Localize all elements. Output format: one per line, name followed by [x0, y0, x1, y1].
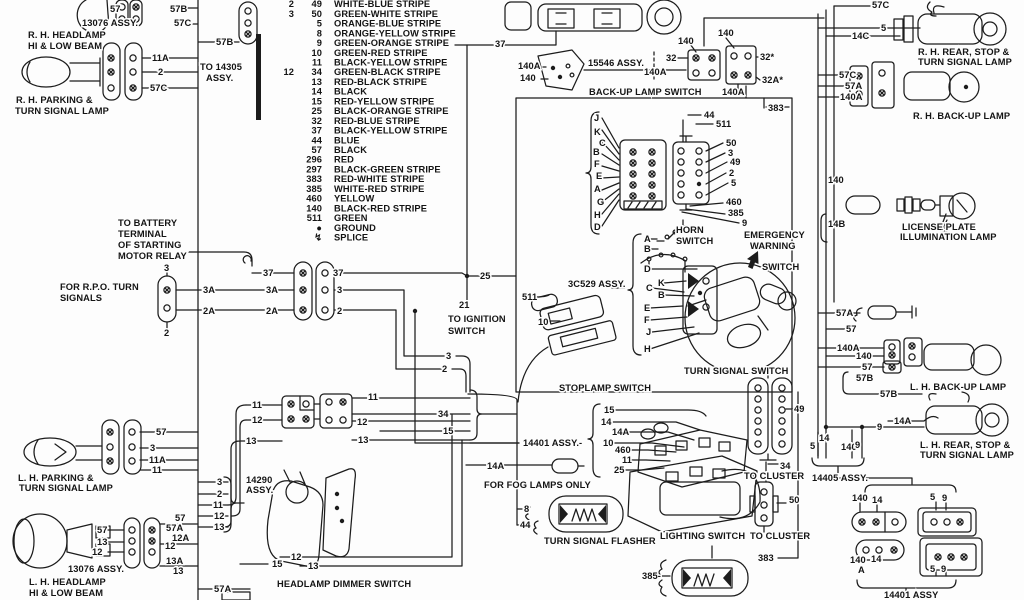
component-label: TURN SIGNAL LAMP — [19, 483, 113, 493]
wire-code-label: 11 — [252, 400, 262, 410]
wire-code-label: B — [644, 244, 651, 254]
legend-color-name: BLACK — [334, 87, 367, 97]
legend-circuit-number: 37 — [311, 126, 322, 136]
legend-circuit-number: 140 — [306, 203, 322, 213]
wire-code-label: 5 — [881, 23, 886, 33]
component-label: L. H. PARKING & — [18, 473, 94, 483]
wire-code-label: 57C — [174, 18, 192, 28]
wire-code-label: 44 — [704, 110, 715, 120]
wire-code-label: 34 — [438, 409, 449, 419]
wire-code-label: 140 — [718, 28, 734, 38]
component-label: LIGHTING SWITCH — [660, 531, 745, 541]
wire-code-label: B — [593, 147, 600, 157]
assembly-label: 14401 ASSY — [884, 590, 939, 600]
wire-code-label: 57 — [97, 525, 108, 535]
legend-circuit-number: ● — [316, 223, 322, 233]
component-label: WARNING — [750, 241, 796, 251]
wire-code-label: 50 — [726, 138, 737, 148]
legend-color-name: RED-WHITE STRIPE — [334, 174, 424, 184]
wire-code-label: 12 — [214, 511, 225, 521]
legend-circuit-number: 14 — [311, 87, 322, 97]
wire-code-label: 37 — [333, 268, 344, 278]
component-label: BACK-UP LAMP SWITCH — [589, 87, 702, 97]
assembly-label: 14401 ASSY.- — [523, 438, 582, 448]
legend-circuit-number: 385 — [306, 184, 322, 194]
wire-code-label: 37 — [263, 268, 274, 278]
wire-code-label: 2 — [729, 168, 734, 178]
legend-circuit-number: 15 — [311, 96, 322, 106]
legend-color-name: GREEN-ORANGE STRIPE — [334, 38, 449, 48]
legend-color-name: GREEN-RED STRIPE — [334, 48, 428, 58]
legend-circuit-number: 32 — [311, 116, 322, 126]
wire-code-label: 511 — [522, 292, 537, 302]
wire-code-label: 14B — [828, 219, 846, 229]
assembly-label: 3C529 ASSY. — [568, 279, 626, 289]
wire-code-label: 385 — [728, 208, 744, 218]
wire-code-label: 140A — [722, 87, 745, 97]
note-label: FOR FOG LAMPS ONLY — [484, 480, 592, 490]
wire-code-label: 13 — [97, 537, 108, 547]
wire-code-label: K — [658, 278, 665, 288]
legend-circuit-number: 50 — [311, 9, 322, 19]
legend-circuit-number: 25 — [311, 106, 322, 116]
wire-code-label: 13 — [358, 435, 369, 445]
wire-code-label: 57C — [872, 0, 890, 10]
assembly-label: 13076 ASSY. — [68, 564, 124, 574]
wire-code-label: C — [646, 283, 653, 293]
labels-layer: 5713076 ASSY.57B57CR. H. HEADLAMPHI & LO… — [15, 0, 1014, 600]
wire-code-label: 9 — [877, 422, 882, 432]
wire-code-label: 9 — [855, 440, 860, 450]
wire-code-label: 9 — [742, 218, 747, 228]
wire-code-label: 57B — [216, 37, 234, 47]
wire-code-label: 3A — [203, 285, 215, 295]
component-label: LICENSE PLATE — [902, 222, 976, 232]
component-label: ILLUMINATION LAMP — [900, 232, 997, 242]
legend-color-name: RED-BLUE STRIPE — [334, 116, 420, 126]
note-label: TO CLUSTER — [750, 531, 810, 541]
wire-code-label: 14A — [487, 461, 505, 471]
wire-code-label: 14 — [601, 417, 612, 427]
legend-circuit-number: 44 — [311, 135, 322, 145]
component-label: SWITCH — [676, 236, 713, 246]
wire-code-label: H — [644, 344, 651, 354]
legend-color-name: RED — [334, 155, 354, 165]
wire-code-label: 57C — [839, 70, 857, 80]
wire-code-label: 57 — [175, 513, 186, 523]
legend-color-name: BLACK — [334, 145, 367, 155]
legend-color-name: BLACK-ORANGE STRIPE — [334, 106, 449, 116]
wire-code-label: 14C — [852, 31, 870, 41]
wire-code-label: 5 — [930, 564, 935, 574]
wire-code-label: 460 — [615, 445, 631, 455]
component-label: R. H. PARKING & — [16, 95, 93, 105]
wire-code-label: 57 — [846, 324, 857, 334]
right-rear-harness — [812, 2, 938, 484]
wire-code-label: 5 — [930, 492, 935, 502]
wire-code-label: 9 — [942, 493, 947, 503]
component-label: L. H. BACK-UP LAMP — [910, 382, 1006, 392]
wire-code-label: 57A — [214, 584, 232, 594]
wire-code-label: E — [596, 171, 602, 181]
legend-color-name: BLACK-RED STRIPE — [334, 203, 427, 213]
wire-code-label: 9 — [941, 564, 946, 574]
wire-code-label: 14 — [871, 554, 882, 564]
wire-code-label: 32* — [760, 52, 775, 62]
wire-code-label: 57 — [110, 4, 121, 14]
wire-code-label: 34 — [780, 461, 791, 471]
wire-code-label: J — [646, 327, 651, 337]
note-label: FOR R.P.O. TURN — [60, 282, 139, 292]
component-label: TURN SIGNAL SWITCH — [684, 366, 789, 376]
component-label: TURN SIGNAL LAMP — [920, 450, 1014, 460]
wire-code-label: 12 — [165, 541, 176, 551]
note-label: MOTOR RELAY — [118, 251, 187, 261]
note-label: TO BATTERY — [118, 218, 178, 228]
legend-color-name: BLACK-YELLOW STRIPE — [334, 58, 447, 68]
wire-code-label: 12 — [252, 415, 263, 425]
legend-circuit-number: 297 — [306, 164, 322, 174]
wire-code-label: 2 — [164, 328, 169, 338]
wire-code-label: 2 — [217, 489, 222, 499]
wire-code-label: 12 — [357, 417, 368, 427]
wire-code-label: 57A — [836, 308, 854, 318]
wire-code-label: 13A — [166, 556, 184, 566]
wire-code-label: 2A — [266, 306, 278, 316]
legend-color-name: GROUND — [334, 223, 376, 233]
wire-code-label: 50 — [789, 495, 800, 505]
wire-code-label: 15 — [443, 426, 454, 436]
wire-code-label: 12 — [92, 547, 103, 557]
wire-code-label: 2 — [442, 364, 447, 374]
legend-color-name: GREEN-BLACK STRIPE — [334, 67, 441, 77]
wire-code-label: 57B — [856, 373, 874, 383]
component-label: HI & LOW BEAM — [29, 588, 103, 598]
wire-code-label: C — [599, 138, 606, 148]
legend-color-name: YELLOW — [334, 194, 374, 204]
legend-circuit-number: 9 — [317, 38, 322, 48]
wire-code-label: 37 — [495, 39, 506, 49]
wire-code-label: 14A — [894, 416, 912, 426]
legend-circuit-number: 49 — [311, 0, 322, 9]
wire-code-label: 14 — [872, 495, 883, 505]
assembly-label: 14405 ASSY. — [812, 473, 868, 483]
wire-code-label: 2 — [158, 67, 163, 77]
component-label: STOPLAMP SWITCH — [559, 383, 651, 393]
component-label: R. H. BACK-UP LAMP — [913, 111, 1010, 121]
note-label: SIGNALS — [60, 293, 102, 303]
wire-code-label: 140 — [856, 351, 872, 361]
note-label: OF STARTING — [118, 240, 181, 250]
component-label: EMERGENCY — [744, 230, 806, 240]
wire-code-label: 511 — [716, 119, 731, 129]
wire-code-label: F — [594, 159, 600, 169]
legend-color-name: ORANGE-BLUE STRIPE — [334, 19, 441, 29]
legend-circuit-number: 511 — [307, 213, 322, 223]
wire-code-label: 57A — [166, 523, 184, 533]
legend-circuit-number: 383 — [306, 174, 322, 184]
wire-code-label: F — [644, 315, 650, 325]
wire-code-label: G — [597, 197, 604, 207]
legend-circuit-number: 460 — [306, 194, 322, 204]
wire-code-label: 32A* — [762, 75, 783, 85]
assembly-label: 15546 ASSY. — [588, 58, 644, 68]
wire-code-label: 10 — [538, 317, 549, 327]
wire-code-label: 57 — [862, 362, 873, 372]
legend-circuit-number: 5 — [317, 19, 322, 29]
legend-circuit-number: 3 — [289, 9, 294, 19]
note-label: SWITCH — [448, 326, 485, 336]
wire-code-label: 10 — [603, 438, 614, 448]
wire-code-label: 32 — [666, 53, 677, 63]
legend-color-name: BLACK-GREEN STRIPE — [334, 164, 441, 174]
wire-code-label: 57C — [150, 83, 168, 93]
component-label: L. H. HEADLAMP — [29, 577, 106, 587]
wire-code-label: 140A — [840, 92, 863, 102]
wire-code-label: 14A — [612, 427, 630, 437]
wire-code-label: 49 — [794, 404, 805, 414]
legend-circuit-number: 11 — [312, 58, 322, 68]
component-label: R. H. HEADLAMP — [28, 30, 106, 40]
wire-code-label: 3 — [164, 263, 169, 273]
legend-circuit-number: ↯ — [314, 232, 322, 242]
wire-code-label: 11 — [368, 392, 378, 402]
wire-code-label: 383 — [768, 103, 784, 113]
component-label: HEADLAMP DIMMER SWITCH — [277, 579, 411, 589]
wire-code-label: 140 — [852, 493, 868, 503]
wire-code-label: 11 — [622, 455, 632, 465]
legend-circuit-number: 12 — [283, 67, 294, 77]
wire-code-label: 57A — [845, 81, 863, 91]
ignition-steering-top — [505, 0, 681, 34]
assembly-label: 13076 ASSY. — [82, 18, 138, 28]
assembly-label: ASSY. — [246, 485, 273, 495]
wiring-diagram-canvas: 5713076 ASSY.57B57CR. H. HEADLAMPHI & LO… — [0, 0, 1024, 600]
scan-artifact — [256, 34, 261, 120]
component-label: R. H. REAR, STOP & — [918, 47, 1010, 57]
wire-code-label: 49 — [730, 157, 741, 167]
wire-code-label: 3 — [150, 443, 155, 453]
component-label: TURN SIGNAL LAMP — [918, 57, 1012, 67]
legend-color-name: SPLICE — [334, 232, 368, 242]
wire-code-label: 21 — [459, 300, 470, 310]
component-label: TURN SIGNAL FLASHER — [544, 536, 656, 546]
wire-code-label: 57B — [880, 389, 898, 399]
note-label: TERMINAL — [118, 229, 167, 239]
component-label: L. H. REAR, STOP & — [920, 440, 1010, 450]
wire-code-label: 3 — [337, 285, 342, 295]
wire-code-label: H — [594, 210, 601, 220]
wire-code-label: 11A — [149, 455, 166, 465]
note-label: TO CLUSTER — [744, 471, 804, 481]
wire-code-label: 13 — [246, 436, 257, 446]
wire-code-label: D — [594, 222, 601, 232]
wire-code-label: 13 — [214, 522, 225, 532]
wire-code-label: 12 — [291, 552, 302, 562]
note-label: TO 14305 — [200, 62, 242, 72]
assembly-label: 14290 — [246, 475, 272, 485]
legend-color-name: GREEN-WHITE STRIPE — [334, 9, 438, 19]
wire-code-label: 140 — [828, 175, 844, 185]
wire-code-label: 5 — [731, 178, 736, 188]
wire-code-label: 140A — [518, 61, 541, 71]
wire-code-label: 2 — [337, 306, 342, 316]
wire-code-label: 11 — [152, 465, 162, 475]
wire-code-label: 13 — [173, 566, 184, 576]
legend-circuit-number: 10 — [311, 48, 322, 58]
wire-code-label: 57B — [170, 4, 188, 14]
wire-code-label: B — [658, 290, 665, 300]
wire-code-label: D — [644, 264, 651, 274]
wire-code-label: 15 — [272, 559, 283, 569]
legend-color-name: RED-BLACK STRIPE — [334, 77, 427, 87]
wire-code-label: 460 — [726, 197, 742, 207]
pin-connectors — [586, 112, 739, 234]
wire-code-label: A — [594, 184, 601, 194]
wire-code-label: 3 — [217, 477, 222, 487]
legend-circuit-number: 57 — [311, 145, 322, 155]
legend-color-name: WHITE-RED STRIPE — [334, 184, 424, 194]
wire-code-label: 140 — [678, 36, 694, 46]
component-label: HI & LOW BEAM — [28, 41, 102, 51]
wire-code-label: J — [594, 113, 599, 123]
wire-code-label: E — [644, 303, 650, 313]
legend-circuit-number: 34 — [311, 67, 322, 77]
wire-code-label: 5 — [810, 441, 815, 451]
component-label: HORN — [676, 225, 704, 235]
legend-color-name: BLUE — [334, 135, 360, 145]
component-label: SWITCH — [762, 262, 799, 272]
wire-code-label: 25 — [614, 465, 625, 475]
wire-code-label: A — [858, 565, 865, 575]
legend-color-name: GREEN — [334, 213, 368, 223]
legend-color-name: WHITE-BLUE STRIPE — [334, 0, 430, 9]
wire-code-label: 140A — [644, 67, 667, 77]
wire-code-label: 57 — [156, 427, 167, 437]
wire-code-label: 140 — [850, 555, 866, 565]
legend-color-name: RED-YELLOW STRIPE — [334, 96, 434, 106]
color-code-legend: 249WHITE-BLUE STRIPE350GREEN-WHITE STRIP… — [283, 0, 455, 242]
wire-code-label: 3 — [446, 351, 451, 361]
wire-code-label: K — [594, 127, 601, 137]
wire-code-label: 2A — [203, 306, 215, 316]
wire-code-label: 25 — [480, 271, 491, 281]
wire-code-label: 385- — [642, 571, 661, 581]
note-label: TO IGNITION — [448, 314, 506, 324]
wire-code-label: 11A — [152, 53, 169, 63]
wire-code-label: 14 — [819, 433, 830, 443]
legend-circuit-number: 8 — [317, 28, 322, 38]
wire-code-label: 8 — [524, 504, 529, 514]
legend-color-name: ORANGE-YELLOW STRIPE — [334, 28, 456, 38]
wire-code-label: 383 — [758, 553, 774, 563]
wire-code-label: 13 — [308, 561, 319, 571]
wire-code-label: 15 — [604, 405, 615, 415]
legend-circuit-number: 2 — [289, 0, 294, 9]
wire-code-label: A — [644, 234, 651, 244]
legend-color-name: BLACK-YELLOW STRIPE — [334, 126, 447, 136]
legend-circuit-number: 296 — [306, 155, 322, 165]
rh-parking-lamp — [22, 43, 198, 100]
component-label: TURN SIGNAL LAMP — [15, 106, 109, 116]
wire-code-label: 140 — [520, 73, 536, 83]
wire-code-label: 3A — [266, 285, 278, 295]
note-label: ASSY. — [206, 73, 233, 83]
wire-code-label: 11 — [213, 500, 223, 510]
wire-code-label: 44 — [520, 520, 531, 530]
legend-circuit-number: 13 — [311, 77, 322, 87]
